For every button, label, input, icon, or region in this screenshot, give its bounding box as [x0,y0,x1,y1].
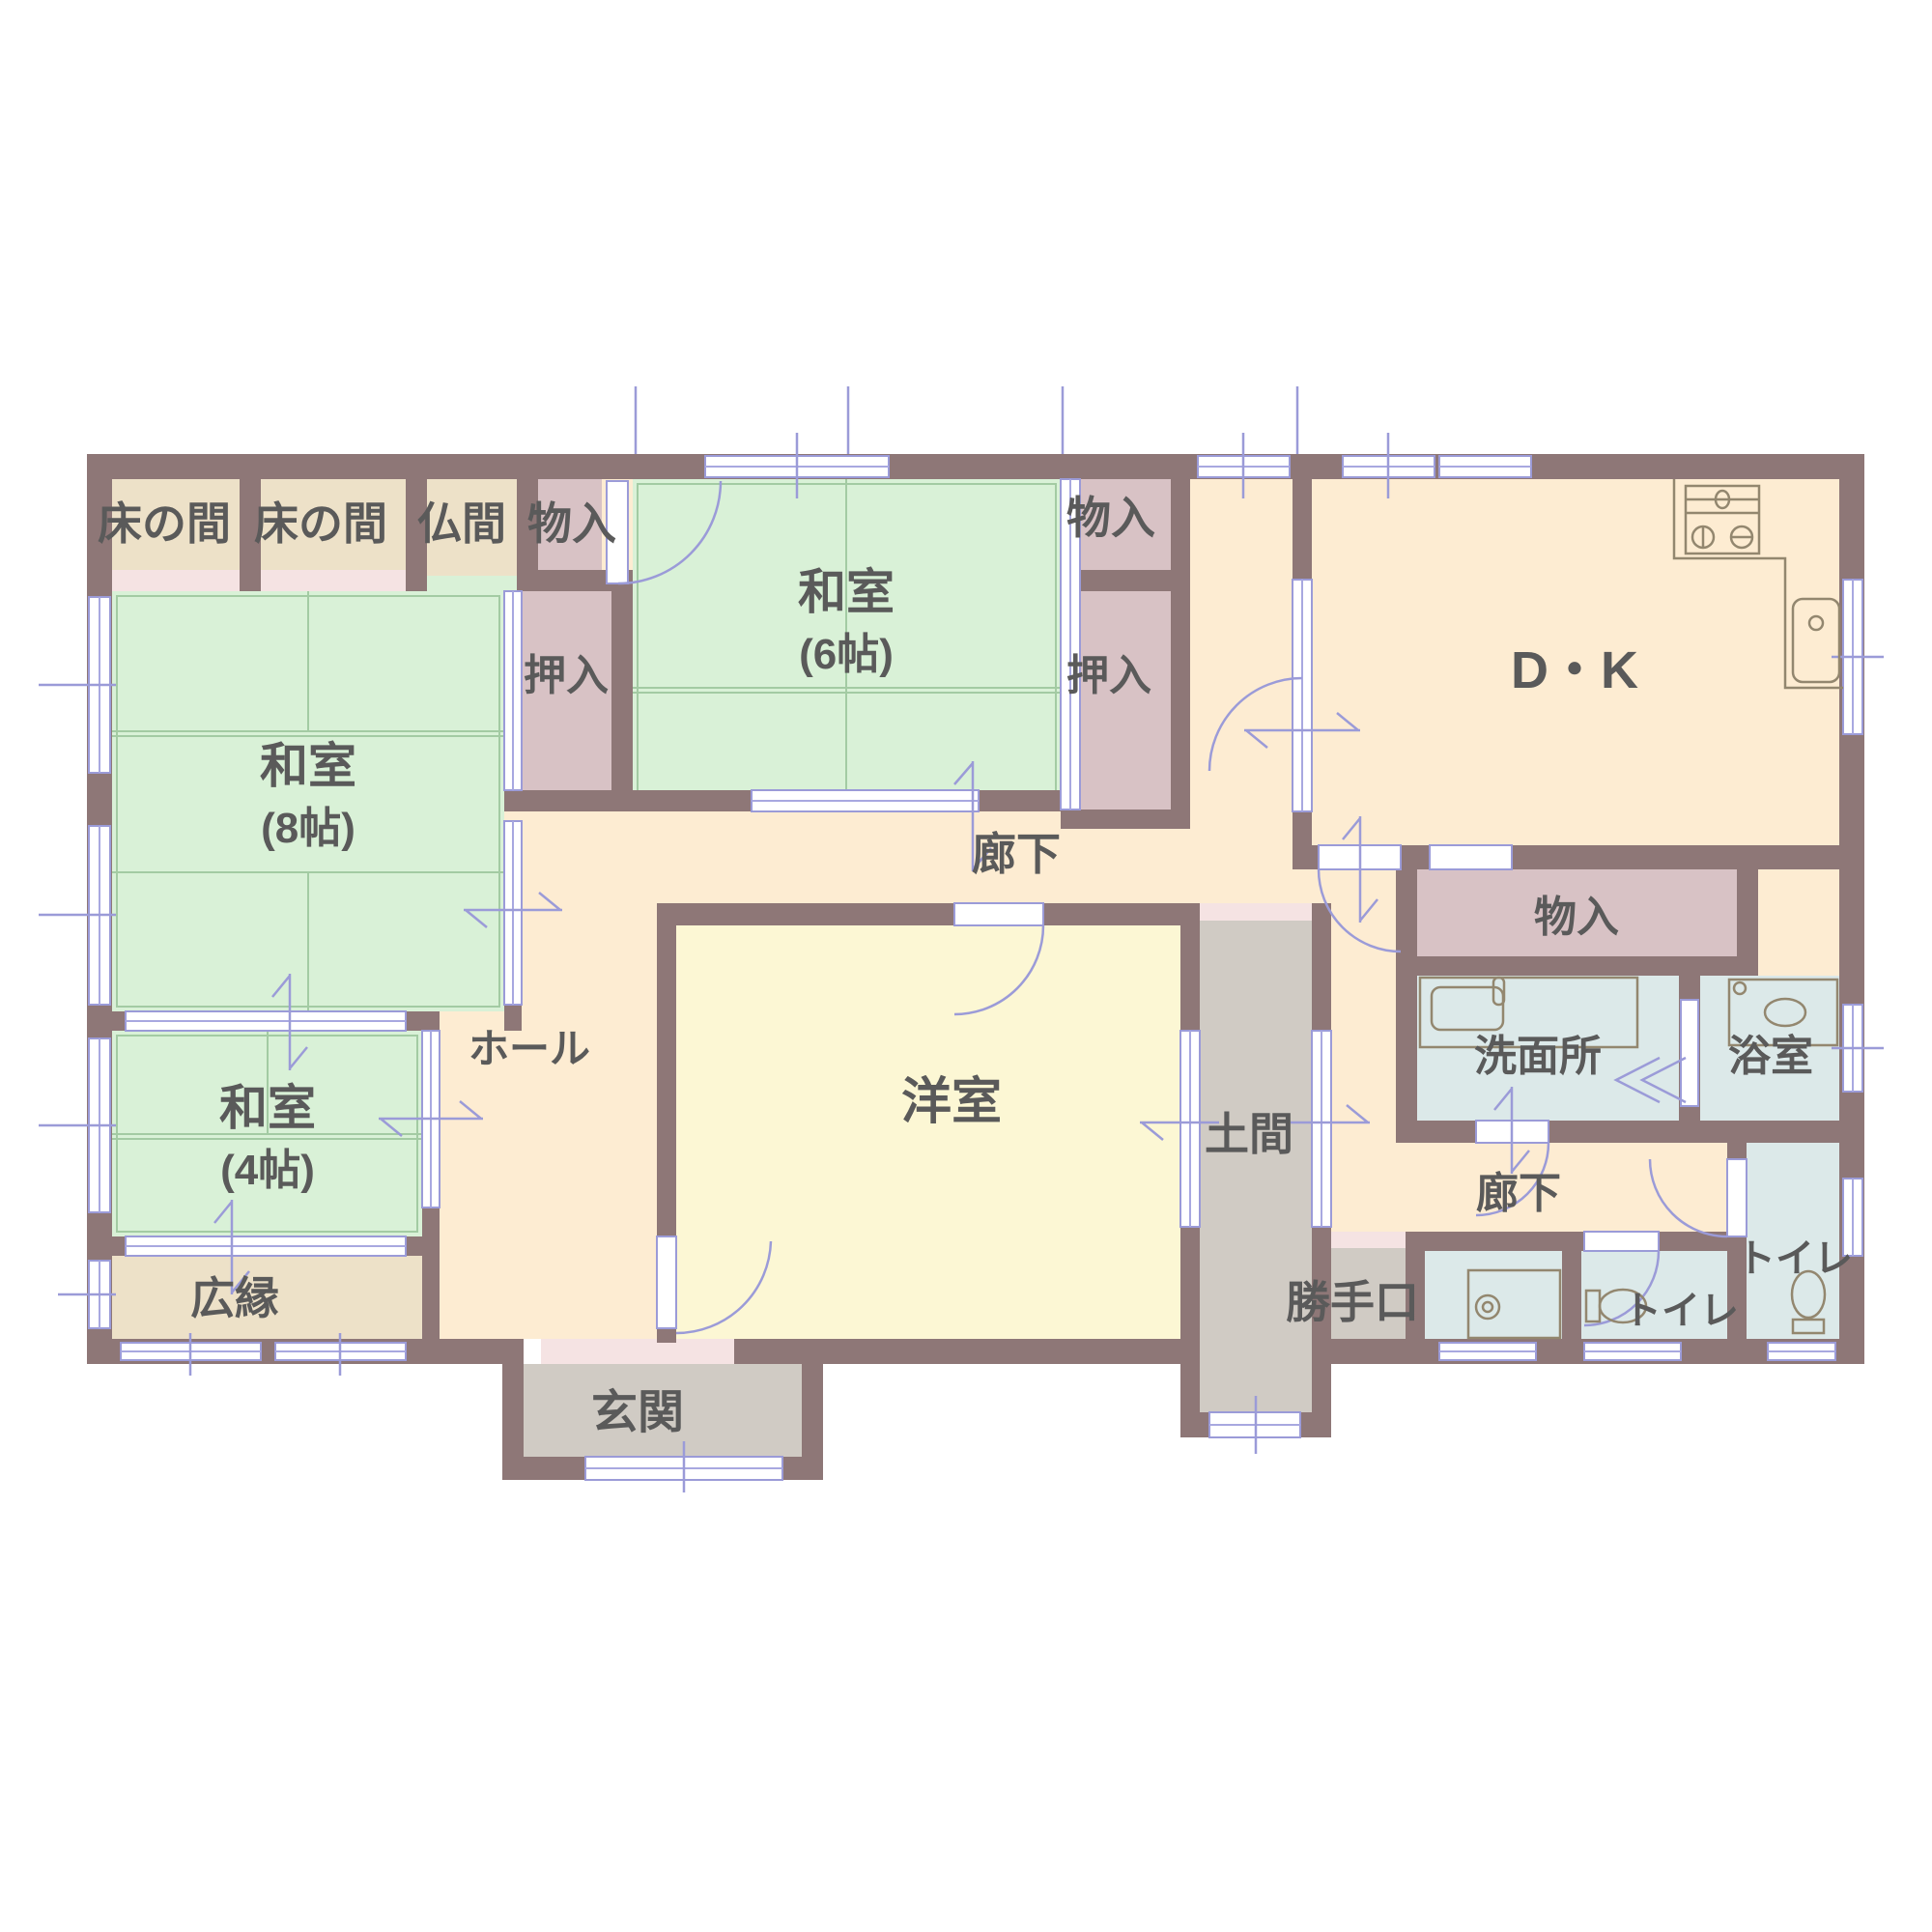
window [1584,1343,1681,1360]
floor-plan-page: 床の間 床の間 仏間 物入 和室 (6帖) 物入 押入 押入 D・K 廊下 物入… [0,0,1932,1932]
label-washitsu-6-size: (6帖) [799,631,894,678]
label-kitchen-door: 勝手口 [1286,1277,1419,1327]
sliding-door [504,821,522,1005]
label-hall: ホール [469,1026,590,1071]
label-corridor-back: 廊下 [1476,1170,1561,1217]
room-area-utility [1425,1251,1562,1339]
label-washitsu-4: 和室 [219,1081,316,1135]
label-washitsu-6: 和室 [798,565,895,619]
label-dining-kitchen: D・K [1511,641,1638,699]
butsuma-tatami-edge [427,576,517,591]
label-washitsu-8: 和室 [260,739,356,793]
label-corridor-main: 廊下 [972,829,1061,879]
room-area-oshiire-right [1080,591,1171,810]
fusuma [752,790,979,811]
hinged-door-leaf [657,1236,676,1328]
label-hiroen: 広縁 [190,1273,279,1323]
label-oshiire-right: 押入 [1066,652,1151,699]
window [1439,1343,1536,1360]
room-area-doma [1200,921,1312,1415]
label-toilet-outer: トイレ [1737,1237,1853,1280]
label-storage-top: 物入 [527,498,616,549]
label-butsuma: 仏間 [417,498,506,549]
fusuma [126,1236,406,1256]
label-western-room: 洋室 [901,1074,1002,1130]
tokonoma-right-step [261,570,406,591]
window [1768,1343,1835,1360]
window [1439,456,1531,477]
kitchen-door-step [1331,1232,1406,1248]
label-washroom: 洗面所 [1474,1033,1602,1080]
label-storage-dk: 物入 [1534,894,1619,941]
hinged-door-leaf [954,903,1043,925]
genkan-step [541,1339,734,1364]
label-storage-mid: 物入 [1066,493,1155,543]
tokonoma-left-step [112,570,240,591]
interior-window [1430,845,1512,869]
floor-plan-canvas: 床の間 床の間 仏間 物入 和室 (6帖) 物入 押入 押入 D・K 廊下 物入… [0,0,1932,1932]
label-doma: 土間 [1205,1109,1293,1159]
sliding-door [1293,580,1312,811]
room-area-western-room [676,925,1180,1339]
label-bathroom: 浴室 [1728,1032,1813,1080]
sliding-door [504,591,522,790]
label-oshiire-left: 押入 [524,652,609,699]
fusuma [126,1011,406,1031]
label-genkan: 玄関 [591,1387,684,1438]
doma-step [1200,903,1312,921]
label-tokonoma-right: 床の間 [254,498,387,549]
label-washitsu-8-size: (8帖) [261,805,355,852]
label-tokonoma-left: 床の間 [98,498,231,549]
sliding-door [1312,1031,1331,1227]
hinged-door-leaf [1584,1232,1659,1251]
sliding-door [1180,1031,1200,1227]
label-washitsu-4-size: (4帖) [220,1147,315,1194]
folding-door-leaf [1681,1000,1698,1106]
hinged-door-leaf [1727,1159,1747,1236]
label-toilet-inner: トイレ [1623,1290,1739,1332]
